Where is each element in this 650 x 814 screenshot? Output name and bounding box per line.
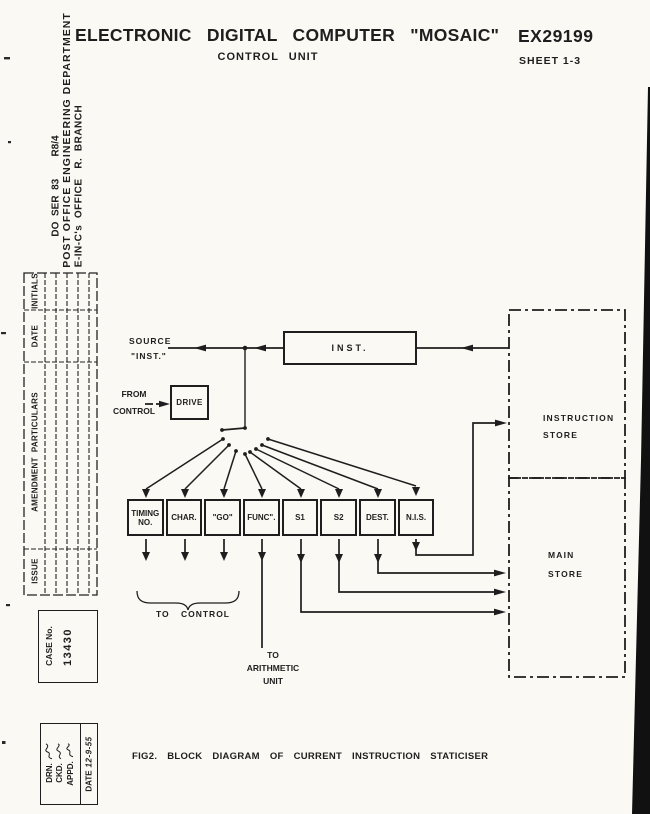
margin-series-ref: DO SER 83 R8/4 xyxy=(51,135,62,236)
sheet-number: SHEET 1-3 xyxy=(519,55,581,67)
amendment-col-initials: INITIALS xyxy=(31,273,40,309)
main-store-line2: STORE xyxy=(548,565,583,584)
register-char: CHAR. xyxy=(166,499,203,536)
approved-by-label: APPD. xyxy=(66,761,75,785)
to-arithmetic-line2: ARITHMETIC xyxy=(234,662,312,675)
register-s2: S2 xyxy=(320,499,357,536)
margin-office-branch: E-IN-C's OFFICE R. BRANCH xyxy=(74,105,85,267)
amendment-col-particulars: AMENDMENT PARTICULARS xyxy=(31,392,40,512)
amendment-col-date: DATE xyxy=(31,325,40,347)
source-inst-label: SOURCE "INST." xyxy=(129,334,171,364)
register-dest: DEST. xyxy=(359,499,396,536)
diagram-linework xyxy=(0,0,650,814)
instruction-store-line1: INSTRUCTION xyxy=(543,410,614,427)
date-value: 12-9-55 xyxy=(85,736,94,767)
instruction-store-outline xyxy=(509,310,625,478)
inst-register-box: INST. xyxy=(283,331,417,365)
checked-by-label: CKD. xyxy=(55,763,64,783)
drive-box: DRIVE xyxy=(170,385,209,420)
figure-caption: FIG2. BLOCK DIAGRAM OF CURRENT INSTRUCTI… xyxy=(132,751,488,762)
date-label: DATE xyxy=(85,770,94,791)
register-nis: N.I.S. xyxy=(398,499,435,536)
drawing-number: EX29199 xyxy=(518,26,594,47)
main-store-label: MAIN STORE xyxy=(548,546,583,584)
staticiser-register-row: TIMING NO. CHAR. "GO" FUNC". S1 S2 DEST.… xyxy=(127,499,434,536)
to-control-label: TO CONTROL xyxy=(150,609,236,619)
register-timing-no: TIMING NO. xyxy=(127,499,164,536)
from-control-label: FROM CONTROL xyxy=(110,386,158,420)
approved-by-signature xyxy=(64,742,76,758)
register-func: FUNC". xyxy=(243,499,280,536)
from-control-line1: FROM xyxy=(110,386,158,403)
drawing-sheet: ELECTRONIC DIGITAL COMPUTER "MOSAIC" CON… xyxy=(0,0,650,814)
register-s1: S1 xyxy=(282,499,319,536)
source-label-line2: "INST." xyxy=(129,349,171,364)
to-arithmetic-line1: TO xyxy=(234,649,312,662)
approved-by-row: APPD. xyxy=(64,742,76,785)
instruction-store-line2: STORE xyxy=(543,427,614,444)
scan-marks xyxy=(1,57,11,744)
case-number-value: 13430 xyxy=(62,628,74,666)
scan-edge-band xyxy=(632,87,650,814)
to-arithmetic-line3: UNIT xyxy=(234,675,312,688)
source-label-line1: SOURCE xyxy=(129,334,171,349)
to-arithmetic-unit-label: TO ARITHMETIC UNIT xyxy=(234,649,312,688)
main-store-line1: MAIN xyxy=(548,546,583,565)
instruction-store-label: INSTRUCTION STORE xyxy=(543,410,614,444)
drawing-title: ELECTRONIC DIGITAL COMPUTER "MOSAIC" xyxy=(75,25,475,46)
case-number-label: CASE No. xyxy=(44,626,54,666)
margin-department: POST OFFICE ENGINEERING DEPARTMENT xyxy=(61,12,73,267)
date-row: DATE 12-9-55 xyxy=(85,736,94,791)
register-go: "GO" xyxy=(204,499,241,536)
drawing-subtitle: CONTROL UNIT xyxy=(193,51,343,63)
amendment-col-issue: ISSUE xyxy=(31,558,40,584)
store-outlines xyxy=(509,310,625,677)
from-control-line2: CONTROL xyxy=(110,403,158,420)
approval-box-divider xyxy=(80,723,81,805)
